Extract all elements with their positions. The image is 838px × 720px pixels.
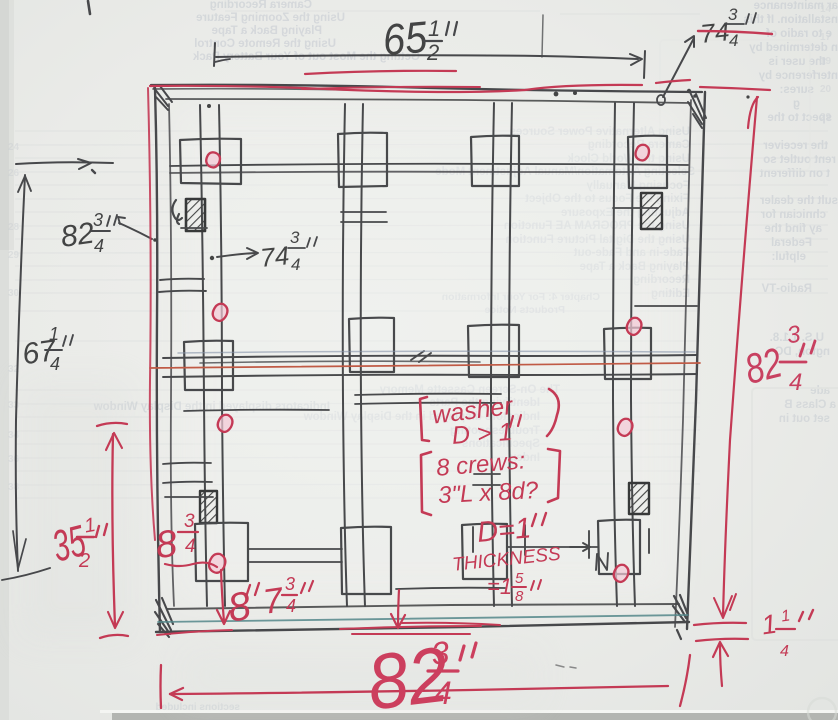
- svg-text:=1: =1: [487, 574, 512, 599]
- svg-text:a Class B: a Class B: [784, 399, 836, 411]
- svg-text:20: 20: [820, 84, 832, 95]
- svg-text:D=1: D=1: [476, 512, 533, 549]
- svg-text:24: 24: [8, 142, 20, 153]
- svg-text:2: 2: [426, 40, 439, 65]
- svg-text:3: 3: [184, 511, 195, 532]
- svg-text:4: 4: [780, 643, 789, 660]
- svg-text:3"L x 8d?: 3"L x 8d?: [437, 477, 539, 509]
- svg-text:3: 3: [290, 228, 300, 247]
- svg-text:5: 5: [515, 570, 524, 587]
- svg-text:nterference by: nterference by: [758, 70, 838, 82]
- svg-text:Using the Zooming Feature: Using the Zooming Feature: [196, 12, 345, 24]
- svg-text:Playing Back a Tape: Playing Back a Tape: [212, 25, 322, 37]
- svg-text:rent outlet so: rent outlet so: [763, 154, 836, 166]
- svg-text:1: 1: [428, 16, 440, 41]
- svg-text:82: 82: [59, 217, 97, 254]
- svg-text:e to radio of: e to radio of: [766, 28, 832, 40]
- svg-text:4: 4: [50, 354, 60, 374]
- svg-text:3: 3: [728, 5, 738, 24]
- svg-text:set out in: set out in: [779, 413, 830, 425]
- svg-text:4: 4: [789, 369, 802, 396]
- svg-text:the receiver: the receiver: [763, 140, 828, 152]
- svg-text:ar maintenance: ar maintenance: [754, 0, 838, 12]
- svg-text:spect to the: spect to the: [767, 112, 832, 124]
- svg-text:8: 8: [515, 588, 524, 605]
- svg-text:4: 4: [729, 31, 738, 50]
- svg-text:3: 3: [93, 210, 103, 230]
- svg-text:Radio-TV: Radio-TV: [761, 283, 812, 295]
- svg-text:2: 2: [78, 550, 90, 572]
- svg-text:26: 26: [8, 168, 20, 179]
- svg-text:sures:: sures:: [779, 84, 814, 96]
- svg-text:g: g: [793, 98, 800, 110]
- svg-text:D > 1: D > 1: [451, 418, 513, 450]
- svg-text:n determined by: n determined by: [749, 42, 838, 54]
- svg-text:36: 36: [8, 454, 20, 465]
- svg-text:Federal: Federal: [771, 237, 812, 249]
- svg-text:ay find the: ay find the: [764, 223, 822, 235]
- svg-text:the user is: the user is: [768, 56, 826, 68]
- svg-text:ade: ade: [810, 385, 830, 397]
- svg-text:4: 4: [291, 255, 300, 274]
- svg-text:34: 34: [8, 430, 20, 441]
- svg-text:4: 4: [185, 536, 196, 557]
- svg-text:65: 65: [381, 13, 430, 66]
- svg-text:chnician for: chnician for: [760, 209, 826, 221]
- svg-text:1: 1: [49, 324, 59, 344]
- svg-text:4: 4: [94, 236, 104, 256]
- svg-text:3: 3: [285, 574, 295, 594]
- svg-text:38: 38: [8, 482, 20, 493]
- svg-text:nstallation. If this: nstallation. If this: [743, 14, 838, 26]
- svg-text:30: 30: [8, 288, 20, 299]
- svg-text:29: 29: [8, 250, 20, 261]
- svg-text:Camera Recording: Camera Recording: [210, 0, 312, 11]
- svg-text:28: 28: [8, 222, 20, 233]
- svg-text:sult the dealer: sult the dealer: [760, 195, 838, 207]
- svg-text:4: 4: [434, 675, 452, 711]
- svg-text:elpful:: elpful:: [772, 251, 807, 263]
- svg-text:4: 4: [286, 596, 296, 616]
- svg-text:33: 33: [8, 400, 20, 411]
- svg-text:74: 74: [259, 240, 291, 273]
